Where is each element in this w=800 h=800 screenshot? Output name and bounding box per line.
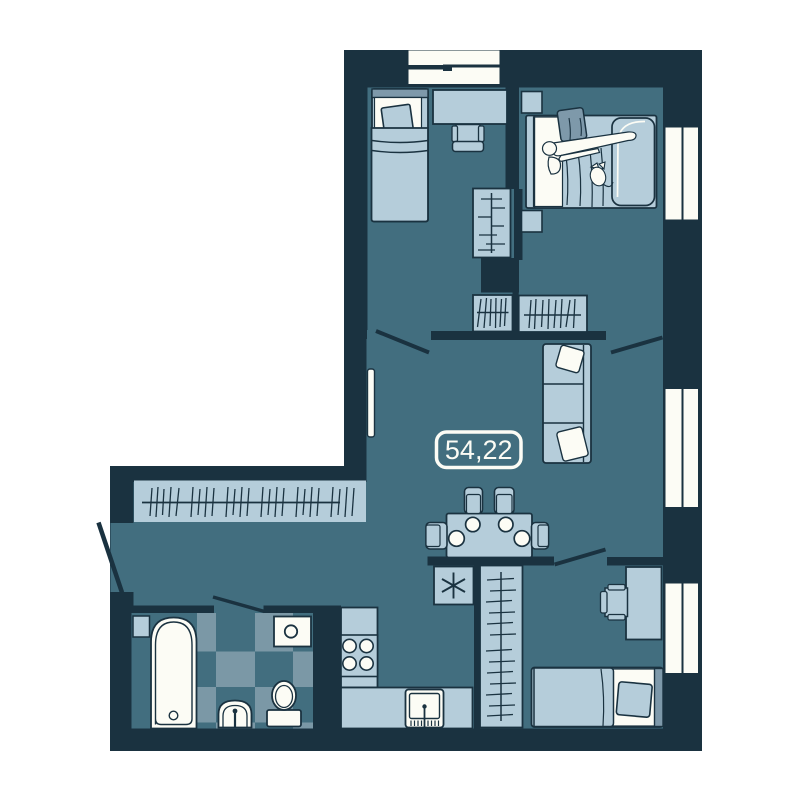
svg-text:54,22: 54,22 bbox=[445, 435, 513, 465]
